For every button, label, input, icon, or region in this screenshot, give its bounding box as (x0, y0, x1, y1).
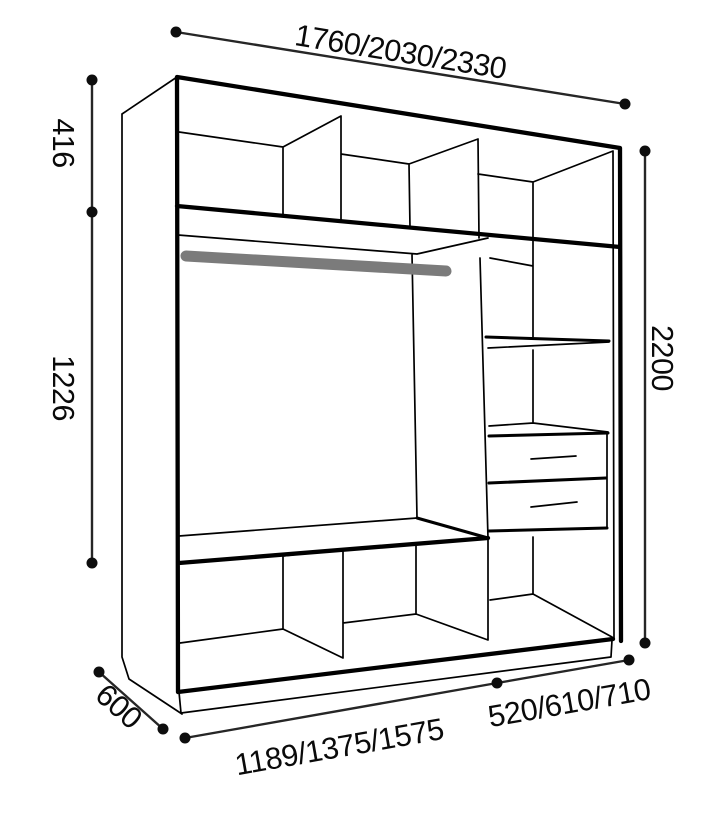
dim-dot (620, 99, 631, 110)
dim-dot (87, 207, 98, 218)
label-width-options: 1760/2030/2330 (293, 18, 509, 86)
cabinet-interior-lines (122, 77, 614, 714)
label-total-height: 2200 (645, 325, 679, 391)
dim-dot (180, 733, 191, 744)
wardrobe-dimension-diagram: 1760/2030/2330 416 1226 2200 600 1189/13… (0, 0, 707, 813)
dim-dot (640, 146, 651, 157)
hanging-rail (186, 256, 446, 271)
dim-dot (640, 638, 651, 649)
label-hanging-section-height: 1226 (46, 355, 80, 421)
dim-dot (87, 558, 98, 569)
dim-dot (94, 667, 105, 678)
dim-dot (158, 724, 169, 735)
wardrobe-drawing (122, 77, 621, 714)
dimension-dots (87, 27, 651, 744)
dim-dot (624, 655, 635, 666)
cabinet-outline-bold (177, 77, 621, 692)
label-top-section-height: 416 (46, 118, 80, 167)
dim-dot (87, 75, 98, 86)
dim-dot (171, 27, 182, 38)
label-left-width-options: 1189/1375/1575 (232, 712, 446, 782)
diagram-canvas: 1760/2030/2330 416 1226 2200 600 1189/13… (0, 0, 707, 813)
cabinet-shelf-and-drawer-edges (417, 337, 609, 538)
dim-dot (492, 678, 503, 689)
